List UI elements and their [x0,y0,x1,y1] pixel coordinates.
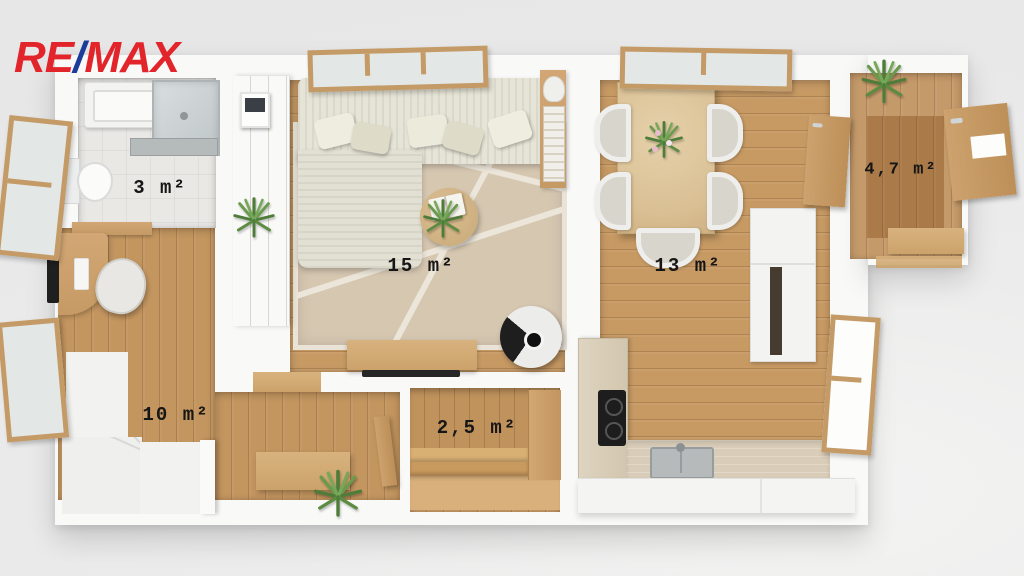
dining-chair [595,172,631,230]
fridge-cabinet [750,208,816,362]
living-hall-threshold [253,372,321,392]
dining-top-window [620,47,793,92]
dining-chair [595,104,631,162]
stairs-lower-flight [140,442,200,514]
entry-bench [888,228,964,254]
room-label-entry: 4,7 m² [864,161,937,180]
room-label-dining: 13 m² [654,255,721,277]
window-mullion [701,53,706,75]
room-label-storage: 2,5 m² [437,417,517,439]
wood-stove [500,306,562,368]
room-label-living: 15 m² [387,255,454,277]
picture-art [245,98,265,112]
flower-blossom [666,140,672,146]
burner [605,422,623,440]
entry-inner-door [803,115,851,208]
entry-step [876,256,962,268]
door-handle [950,118,962,124]
stairs-end-wall [200,440,215,514]
storage-step [410,448,528,462]
kitchen-sink [650,447,714,479]
storage-step-wide [410,476,560,510]
floorplan-canvas: 3 m² 15 m² 13 m² 4,7 m² 10 m² 2,5 m² RE/… [0,0,1024,576]
flower-blossom [655,130,661,136]
window-mullion [365,54,371,76]
remax-logo: RE/MAX [14,36,179,80]
bathroom-shelf [130,138,218,156]
picture-frame [240,92,270,128]
cabinet-seam [751,263,815,265]
stairs-winder [62,437,142,514]
burner [605,398,623,416]
door-glass [970,133,1006,158]
logo-slash-icon: / [73,33,84,82]
counter-seam [760,479,762,513]
cooktop [598,390,626,446]
room-label-hall: 10 m² [142,404,209,426]
logo-text-max: MAX [84,33,179,82]
door-handle [812,123,822,128]
logo-text-re: RE [14,33,73,82]
kitchen-window [821,314,881,455]
tv-sideboard [347,340,477,370]
storage-step [410,462,528,476]
front-door [943,103,1016,201]
table-flowers [642,118,686,162]
table-plant [420,196,466,242]
window-mullion [831,376,861,383]
flower-blossom [652,146,658,152]
storage-cabinet [528,390,561,480]
hall-plant [310,466,366,522]
living-top-window [307,46,488,93]
window-mullion [421,52,427,74]
radiator [543,106,565,182]
faucet [676,443,685,452]
winder-edge [101,437,142,483]
stairs-upper-flight [66,352,128,437]
room-label-bathroom: 3 m² [133,177,187,199]
left-window-lower [0,318,69,443]
desk-paper [74,258,89,290]
kitchen-counter-front [578,478,855,513]
window-mullion [7,178,51,188]
tv-screen [362,370,460,377]
sink-divider [680,449,682,473]
cabinet-slot [770,267,782,355]
shower-drain [180,112,188,120]
entry-plant [858,56,910,108]
sofa-chaise [298,150,422,268]
shell-decor [543,76,565,102]
winder-edge [81,437,142,469]
potted-plant [230,194,278,242]
stove-flue [524,330,544,350]
